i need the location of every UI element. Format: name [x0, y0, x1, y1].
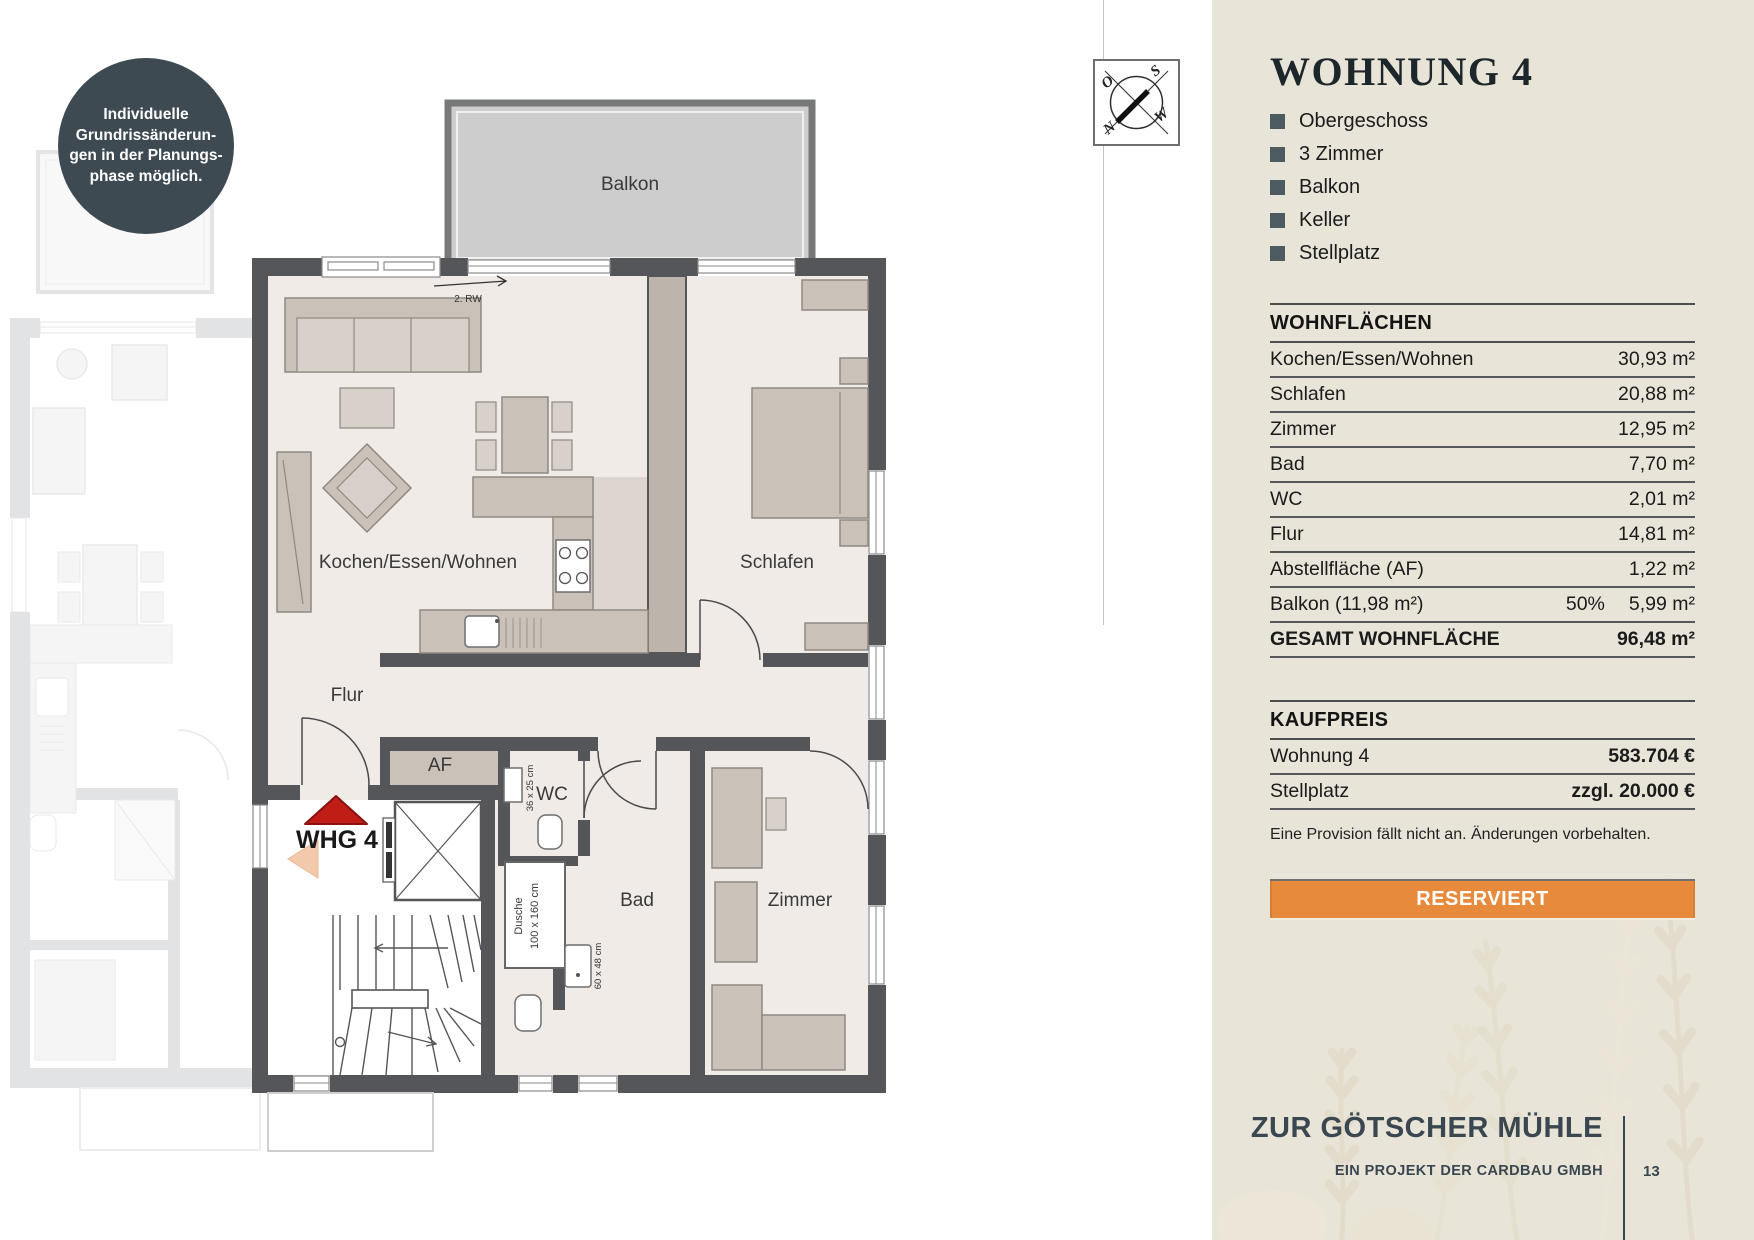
reserviert-status-button[interactable]: RESERVIERT [1270, 879, 1695, 920]
elevator [383, 802, 481, 900]
ground-outline [268, 1093, 433, 1151]
table-row-total: GESAMT WOHNFLÄCHE96,48 m² [1270, 623, 1695, 658]
rw-label: 2. RW [454, 294, 482, 305]
bedroom-label: Schlafen [740, 552, 814, 573]
price-heading: KAUFPREIS [1270, 700, 1695, 740]
table-row: Abstellfläche (AF)1,22 m² [1270, 553, 1695, 588]
neighbor-apartment-faded [10, 152, 260, 1150]
hall-label: Flur [331, 685, 364, 706]
table-row: Stellplatz zzgl. 20.000 € [1270, 775, 1695, 810]
compass-needle [1117, 91, 1148, 122]
shower-label-1: Dusche [513, 897, 525, 934]
af-label: AF [428, 755, 452, 776]
living-label: Kochen/Essen/Wohnen [319, 552, 517, 573]
badge-line: gen in der Planungs- [69, 146, 222, 167]
room-label: Zimmer [768, 890, 833, 911]
feature-balkon: Balkon [1270, 171, 1695, 204]
feature-zimmer: 3 Zimmer [1270, 138, 1695, 171]
info-panel: WOHNUNG 4 Obergeschoss 3 Zimmer Balkon K… [1212, 0, 1754, 1240]
table-row-balkon: Balkon (11,98 m²) 50% 5,99 m² [1270, 588, 1695, 623]
wc-label: WC [536, 784, 568, 805]
bath-label: Bad [620, 890, 654, 911]
compass-w: W [1152, 104, 1174, 126]
table-row: Wohnung 4 583.704 € [1270, 740, 1695, 775]
bullet-square-icon [1270, 213, 1285, 228]
bullet-square-icon [1270, 180, 1285, 195]
project-subtitle: EIN PROJEKT DER CARDBAU GMBH [1335, 1163, 1603, 1179]
badge-line: phase möglich. [90, 167, 203, 188]
areas-table: WOHNFLÄCHEN Kochen/Essen/Wohnen30,93 m² … [1270, 303, 1695, 658]
table-row: Flur14,81 m² [1270, 518, 1695, 553]
feature-stellplatz: Stellplatz [1270, 237, 1695, 270]
balcony-label: Balkon [601, 174, 659, 195]
interior-wall-taupe [648, 276, 686, 653]
feature-obergeschoss: Obergeschoss [1270, 105, 1695, 138]
whg4-label: WHG 4 [296, 826, 378, 854]
table-row: Schlafen20,88 m² [1270, 378, 1695, 413]
table-row: Zimmer12,95 m² [1270, 413, 1695, 448]
badge-line: Grundrissänderun- [76, 126, 216, 147]
badge-line: Individuelle [103, 105, 188, 126]
table-row: Kochen/Essen/Wohnen30,93 m² [1270, 343, 1695, 378]
page-title: WOHNUNG 4 [1270, 48, 1534, 95]
compass: O S W N [1093, 59, 1180, 146]
info-badge: Individuelle Grundrissänderun- gen in de… [58, 58, 234, 234]
table-row: WC2,01 m² [1270, 483, 1695, 518]
bath-sink-label: 60 x 48 cm [593, 943, 604, 990]
wc-sink-label: 36 x 25 cm [525, 765, 536, 812]
shower-label-2: 100 x 160 cm [529, 883, 541, 949]
bullet-square-icon [1270, 147, 1285, 162]
price-table: KAUFPREIS Wohnung 4 583.704 € Stellplatz… [1270, 700, 1695, 810]
table-row: Bad7,70 m² [1270, 448, 1695, 483]
provision-note: Eine Provision fällt nicht an. Änderunge… [1270, 826, 1695, 844]
bullet-square-icon [1270, 114, 1285, 129]
footer-divider [1623, 1116, 1625, 1240]
feature-keller: Keller [1270, 204, 1695, 237]
areas-heading: WOHNFLÄCHEN [1270, 303, 1695, 343]
project-title: ZUR GÖTSCHER MÜHLE [1251, 1112, 1603, 1145]
kitchen-floor-strip [593, 477, 648, 610]
bullet-square-icon [1270, 246, 1285, 261]
page-number: 13 [1643, 1163, 1660, 1180]
